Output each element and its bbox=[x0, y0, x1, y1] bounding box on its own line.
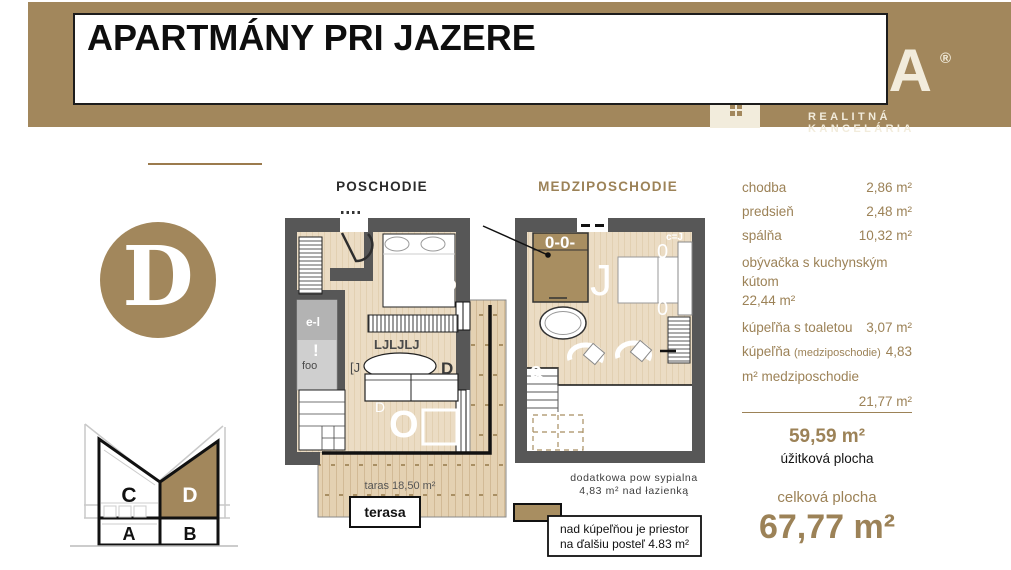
entry-dots bbox=[341, 211, 360, 214]
area-row-obyvacka: obývačka s kuchynským kútom 22,44 m² bbox=[742, 253, 912, 310]
area-value: 2,86 m² bbox=[866, 176, 912, 200]
section-c-label: C bbox=[121, 484, 136, 507]
glyph-ooo: 0-0- bbox=[545, 233, 575, 252]
total-area-caption: celková plocha bbox=[742, 489, 912, 506]
floor-plan-medziposchodie: MEDZIPOSCHODIE 0-0- bbox=[483, 179, 705, 556]
area-label: spálňa bbox=[742, 224, 782, 248]
area-value: 4,83 bbox=[886, 340, 912, 365]
glyph-bracket-j: [J bbox=[350, 360, 360, 375]
area-value: 3,07 m² bbox=[866, 316, 912, 340]
note-box-line1: nad kúpeľňou je priestor bbox=[560, 522, 689, 536]
area-label: obývačka s kuchynským kútom bbox=[742, 253, 912, 291]
glyph-foo: foo bbox=[302, 360, 317, 372]
glyph-d-wall: D bbox=[442, 275, 456, 297]
area-label: m² medziposchodie bbox=[742, 365, 859, 389]
usable-area-value: 59,59 m² bbox=[742, 426, 912, 448]
bathtub bbox=[540, 307, 586, 339]
area-label: predsieň bbox=[742, 200, 794, 224]
poschodie-title: POSCHODIE bbox=[336, 179, 428, 194]
glyph-ljl: LJLJLJ bbox=[374, 337, 420, 352]
summary-divider bbox=[742, 412, 912, 413]
area-row-kupelna-medzi: kúpeľňa (medziposchodie) 4,83 bbox=[742, 340, 912, 365]
sofa bbox=[365, 374, 458, 401]
unit-letter: D bbox=[122, 236, 193, 318]
building-elevation: C D A B bbox=[70, 424, 238, 546]
section-d-label: D bbox=[182, 484, 197, 507]
badge-divider-line bbox=[148, 163, 262, 165]
kitchen-cabinets bbox=[299, 390, 345, 450]
glyph-el: e-l bbox=[306, 315, 320, 329]
section-a-label: A bbox=[123, 524, 136, 544]
stair-railing bbox=[368, 315, 458, 332]
glyph-zero-top: 0 bbox=[657, 241, 668, 263]
note-line2: 4,83 m² nad łazienką bbox=[579, 485, 688, 497]
area-row-spalna: spálňa 10,32 m² bbox=[742, 224, 912, 248]
section-b-label: B bbox=[184, 524, 197, 544]
area-value: 10,32 m² bbox=[859, 224, 912, 248]
glyph-j: J bbox=[590, 256, 612, 305]
terrace-label: terasa bbox=[364, 504, 405, 520]
glyph-cj: c=J bbox=[666, 232, 683, 243]
area-label-paren: (medziposchodie) bbox=[794, 347, 881, 359]
note-line1: dodatkowa pow sypialna bbox=[570, 472, 698, 484]
area-summary: 59,59 m² úžitková plocha celková plocha … bbox=[742, 412, 912, 547]
glyph-a: a bbox=[530, 358, 543, 383]
area-list: chodba 2,86 m² predsieň 2,48 m² spálňa 1… bbox=[742, 176, 912, 414]
usable-area-caption: úžitková plocha bbox=[742, 451, 912, 466]
glyph-excl: ! bbox=[313, 341, 319, 360]
area-value: 22,44 m² bbox=[742, 291, 912, 310]
area-label: chodba bbox=[742, 176, 786, 200]
glyph-d-table: D bbox=[441, 359, 453, 378]
title-box: APARTMÁNY PRI JAZERE bbox=[73, 13, 888, 105]
glyph-zero-bottom: 0 bbox=[657, 298, 668, 320]
medziposchodie-title: MEDZIPOSCHODIE bbox=[538, 179, 678, 194]
area-row-kupelna-toaleta: kúpeľňa s toaletou 3,07 m² bbox=[742, 316, 912, 340]
note-box-line2: na ďalšiu posteľ 4.83 m² bbox=[560, 537, 689, 551]
page-title: APARTMÁNY PRI JAZERE bbox=[87, 17, 886, 59]
total-area-value: 67,77 m² bbox=[742, 508, 912, 547]
logo-tagline: REALITNÁ KANCELÁRIA bbox=[808, 111, 915, 135]
unit-badge: D bbox=[100, 222, 216, 338]
area-label: kúpeľňa s toaletou bbox=[742, 316, 853, 340]
area-label-main: kúpeľňa bbox=[742, 344, 790, 359]
area-row-chodba: chodba 2,86 m² bbox=[742, 176, 912, 200]
area-label: kúpeľňa (medziposchodie) bbox=[742, 340, 881, 365]
glyph-d-small: D bbox=[375, 399, 385, 415]
area-row-predsien: predsieň 2,48 m² bbox=[742, 200, 912, 224]
wardrobe bbox=[299, 237, 322, 294]
header-band: MEGA® REALITNÁ KANCELÁRIA APARTMÁNY PRI … bbox=[28, 2, 1011, 127]
floor-plan-poschodie: POSCHODIE bbox=[285, 179, 506, 527]
area-value: 2,48 m² bbox=[866, 200, 912, 224]
glyph-o: O bbox=[389, 404, 419, 446]
area-row-medzi-wrap: m² medziposchodie bbox=[742, 365, 912, 389]
terrace-area-text: taras 18,50 m² bbox=[365, 480, 436, 492]
area-row-medzi-value: 21,77 m² bbox=[742, 389, 912, 414]
registered-mark: ® bbox=[940, 50, 951, 67]
flyer-page: POSCHODIE bbox=[0, 0, 1011, 570]
